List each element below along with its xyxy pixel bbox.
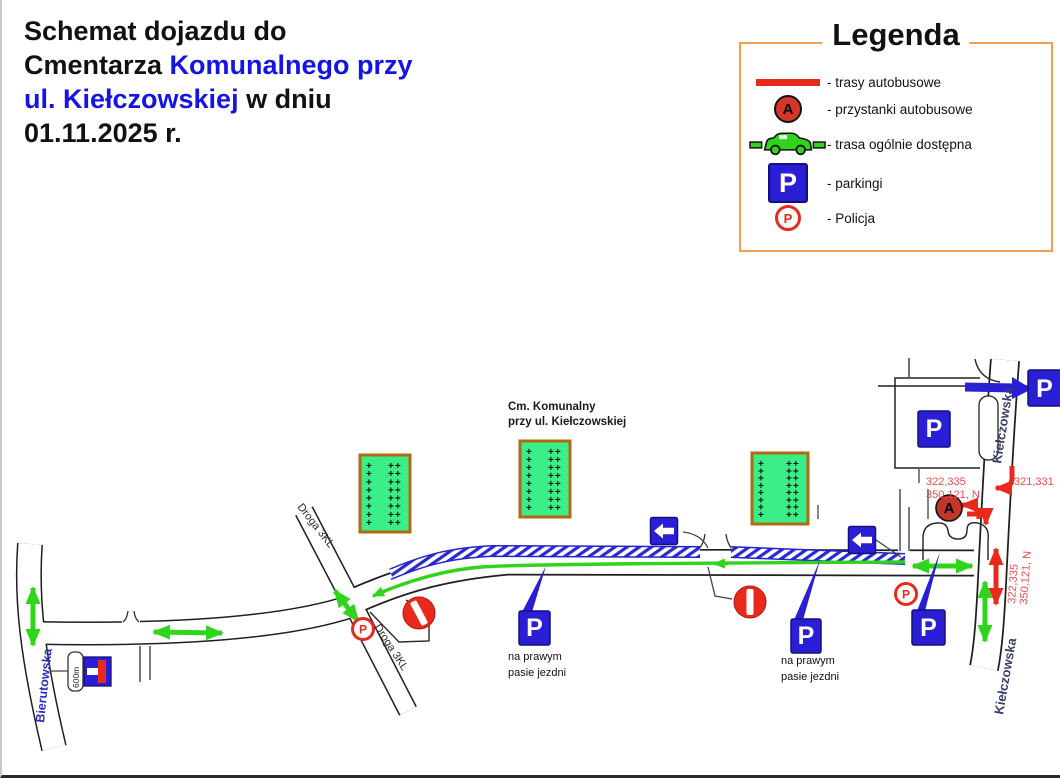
- parking-letter: P: [920, 614, 937, 642]
- police-sign: P: [353, 619, 374, 640]
- police-sign: P: [896, 584, 917, 605]
- grave-cross: ++: [786, 510, 800, 521]
- no-entry-sign: [734, 586, 766, 618]
- grave-cross: ++: [548, 503, 562, 514]
- parking-sign: P: [918, 411, 950, 447]
- left-turn-sign: [651, 518, 678, 545]
- distance-label: 600m: [71, 667, 81, 688]
- no-stopping-sign: [403, 597, 435, 629]
- cemetery-label-line1: Cm. Komunalny: [508, 401, 596, 413]
- grave-cross: +: [526, 503, 533, 514]
- parking-letter: P: [926, 415, 943, 443]
- cemetery-block: ++++++++++++++++++++++++: [520, 441, 570, 517]
- parking-letter: P: [798, 622, 815, 650]
- grave-cross: ++: [388, 518, 402, 529]
- parking-sign: P: [519, 611, 550, 645]
- police-letter: P: [902, 588, 910, 602]
- bus-stop-letter: A: [944, 500, 955, 517]
- parking-sign: P: [1028, 370, 1060, 406]
- distance-tag: 600m: [68, 652, 83, 691]
- right-lane-note: pasie jezdni: [508, 667, 566, 679]
- bus-ref: 322,335: [926, 476, 966, 488]
- right-lane-note: pasie jezdni: [781, 671, 839, 683]
- map-canvas: P P P P P 600m A: [2, 0, 1060, 778]
- parking-letter: P: [1036, 375, 1053, 403]
- cemetery-label-line2: przy ul. Kiełczowskiej: [508, 416, 626, 428]
- bus-ref: 321,331: [1014, 476, 1054, 488]
- parking-sign: P: [791, 619, 821, 653]
- side-street-loop: [900, 489, 909, 551]
- left-turn-sign: [849, 527, 876, 554]
- two-way-arrow-west-road: [154, 632, 222, 633]
- page: Schemat dojazdu do Cmentarza Komunalnego…: [0, 0, 1060, 778]
- cemetery-block: ++++++++++++++++++++++++: [360, 455, 410, 532]
- police-letter: P: [359, 623, 367, 637]
- grave-cross: +: [366, 518, 373, 529]
- driveway-stub: [140, 646, 150, 682]
- bus-ref: 350,121, N: [1018, 550, 1034, 605]
- grave-cross: +: [758, 510, 765, 521]
- cemetery-block: ++++++++++++++++++++++++: [752, 453, 808, 524]
- right-lane-note: na prawym: [781, 655, 835, 667]
- parking-letter: P: [526, 614, 543, 642]
- parking-sign: P: [912, 610, 945, 645]
- bus-ref-vertical: 322,335 350,121, N: [1006, 550, 1034, 605]
- bus-ref: 350,121, N: [926, 489, 980, 501]
- road-main-fill: [352, 562, 974, 602]
- right-lane-note: na prawym: [508, 651, 562, 663]
- dead-end-sign: [84, 657, 111, 686]
